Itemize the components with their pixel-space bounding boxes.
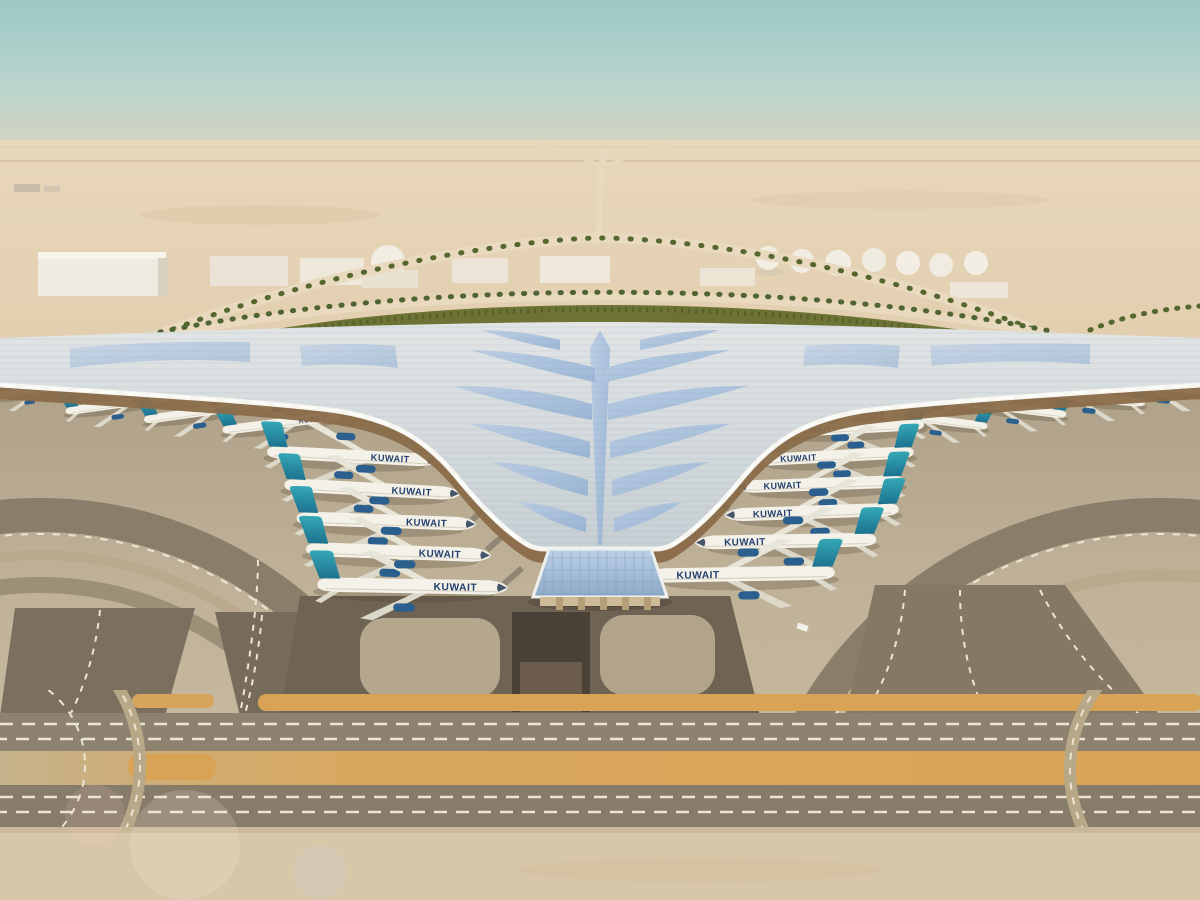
column [556,597,563,610]
column [644,597,651,610]
storage-tank [862,248,886,272]
storage-tank [896,251,920,275]
lens-flare [130,790,240,900]
warehouse-roof [38,252,166,259]
storage-tank [929,253,953,277]
lens-flare [294,846,346,898]
painted-strip-orange [132,694,214,708]
facade-mullions [533,549,667,597]
apron-island [360,618,500,698]
lens-flare [65,785,125,845]
column [578,597,585,610]
apron-island [600,615,715,695]
painted-strip-orange [258,694,1200,711]
distant-building [14,184,40,192]
airport-aerial-rendering: KUWAIT KUWAIT [0,0,1200,900]
scene-canvas: KUWAIT KUWAIT [0,0,1200,900]
sand-patch [520,858,880,882]
warehouse-building [540,256,610,283]
column [622,597,629,610]
warehouse-shade [158,258,168,296]
distant-building [44,186,60,192]
sand-patch [140,205,380,225]
warehouse-building [700,268,755,286]
column [600,597,607,610]
storage-tank [964,251,988,275]
tank-farm-building [950,282,1008,298]
warehouse-building [210,256,288,286]
warehouse-building [452,258,508,283]
sand-patch [750,191,1050,209]
taxiway-horizontal [0,713,1200,751]
